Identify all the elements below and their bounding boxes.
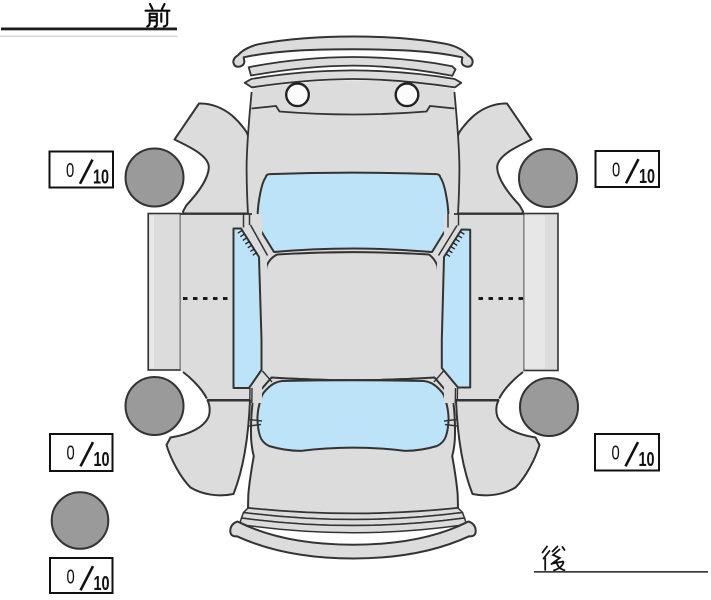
svg-text:0: 0 <box>612 159 620 181</box>
svg-text:10: 10 <box>639 449 655 471</box>
svg-text:10: 10 <box>94 449 110 471</box>
svg-text:0: 0 <box>67 442 75 464</box>
svg-text:0: 0 <box>612 442 620 464</box>
svg-text:10: 10 <box>639 166 655 188</box>
svg-text:10: 10 <box>93 167 109 189</box>
svg-text:0: 0 <box>66 160 74 182</box>
svg-text:10: 10 <box>94 573 110 595</box>
svg-text:0: 0 <box>67 566 75 588</box>
